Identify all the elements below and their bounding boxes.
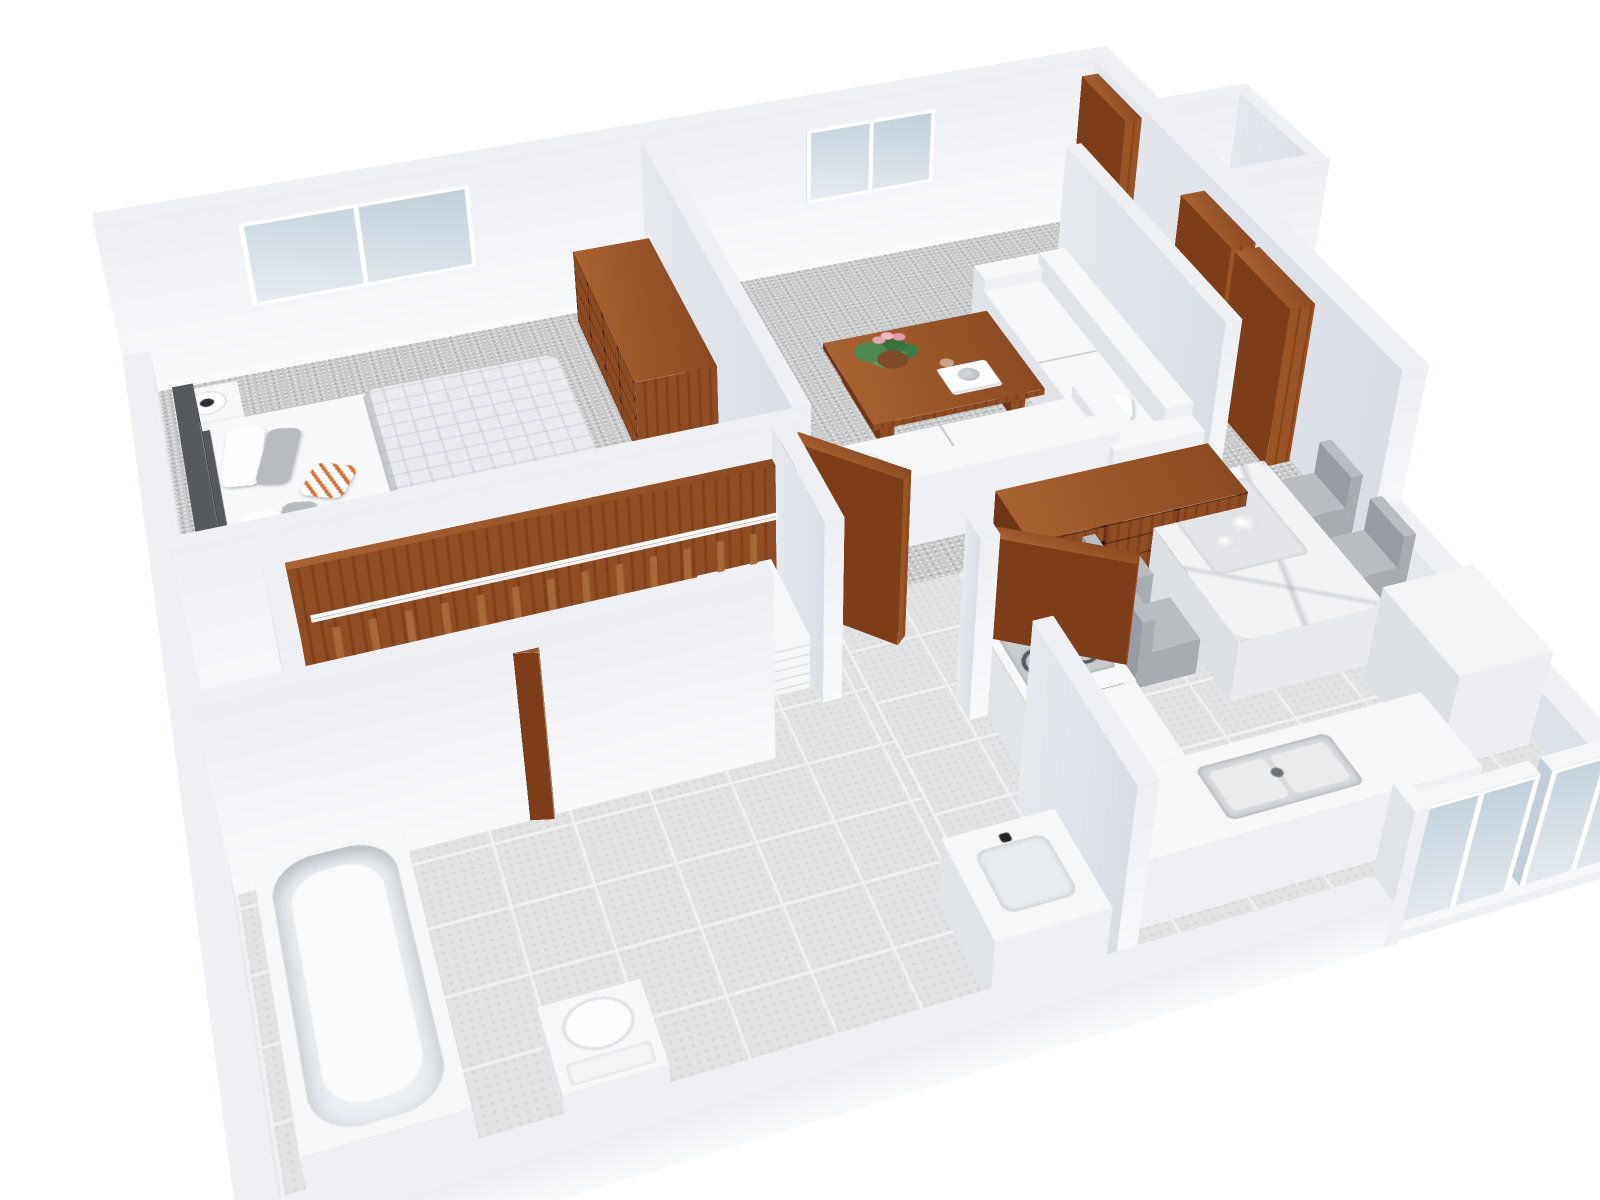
floorplan-3d-render [0, 0, 1600, 1200]
closet-east-wall-f-s [823, 517, 845, 702]
bathtub-basin [267, 836, 452, 1139]
apartment-model [130, 202, 1600, 1200]
vanity-basin [973, 833, 1080, 915]
